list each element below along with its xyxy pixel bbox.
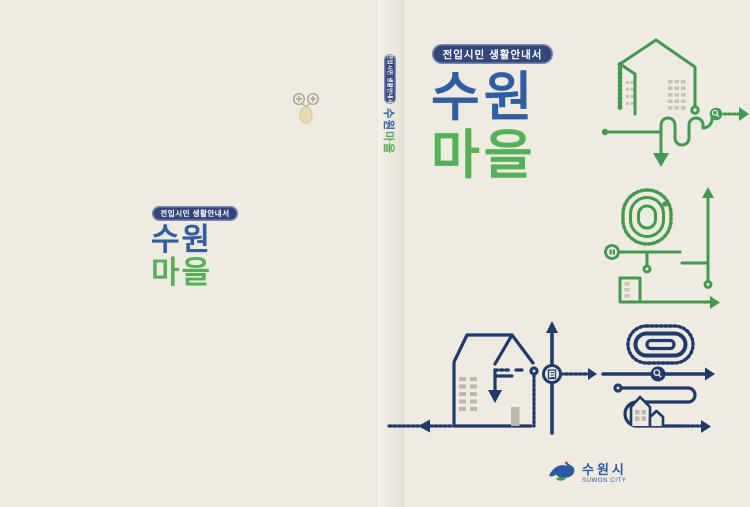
green-track-map-icon bbox=[592, 182, 750, 320]
spine-badge: 전입시민 생활안내서 bbox=[384, 54, 396, 104]
back-cover-title-bottom: 마을 bbox=[151, 257, 212, 288]
spine-title-top: 수원 bbox=[382, 108, 394, 131]
fold-line-left bbox=[377, 0, 378, 507]
front-cover-title-bottom: 마을 bbox=[431, 129, 537, 182]
spine-badge-label: 전입시민 생활안내서 bbox=[386, 54, 394, 104]
navy-house-road-illustration bbox=[385, 318, 750, 450]
suwon-city-logo-symbol-icon bbox=[546, 460, 578, 486]
book-cover-spread: 전입시민 생활안내서 수원 마을 전입시민 생활안내서 수원마을 전입시민 생활… bbox=[0, 0, 750, 507]
suwon-city-logo: 수원시 SUWON CITY bbox=[546, 460, 627, 486]
spine-title-bottom: 마을 bbox=[382, 131, 394, 154]
logo-korean-text: 수원시 bbox=[582, 463, 627, 476]
logo-english-text: SUWON CITY bbox=[582, 478, 627, 484]
front-badge-label: 전입시민 생활안내서 bbox=[443, 47, 543, 62]
spine-title: 수원마을 bbox=[384, 108, 397, 160]
green-house-road-icon bbox=[598, 28, 750, 178]
back-cover-title-top: 수원 bbox=[151, 224, 212, 255]
back-badge-label: 전입시민 생활안내서 bbox=[160, 208, 229, 219]
front-cover-title-top: 수원 bbox=[431, 71, 537, 124]
front-cover-badge: 전입시민 생활안내서 bbox=[432, 44, 553, 64]
faint-emblem-icon bbox=[292, 92, 320, 128]
back-cover-badge: 전입시민 생활안내서 bbox=[152, 206, 238, 221]
